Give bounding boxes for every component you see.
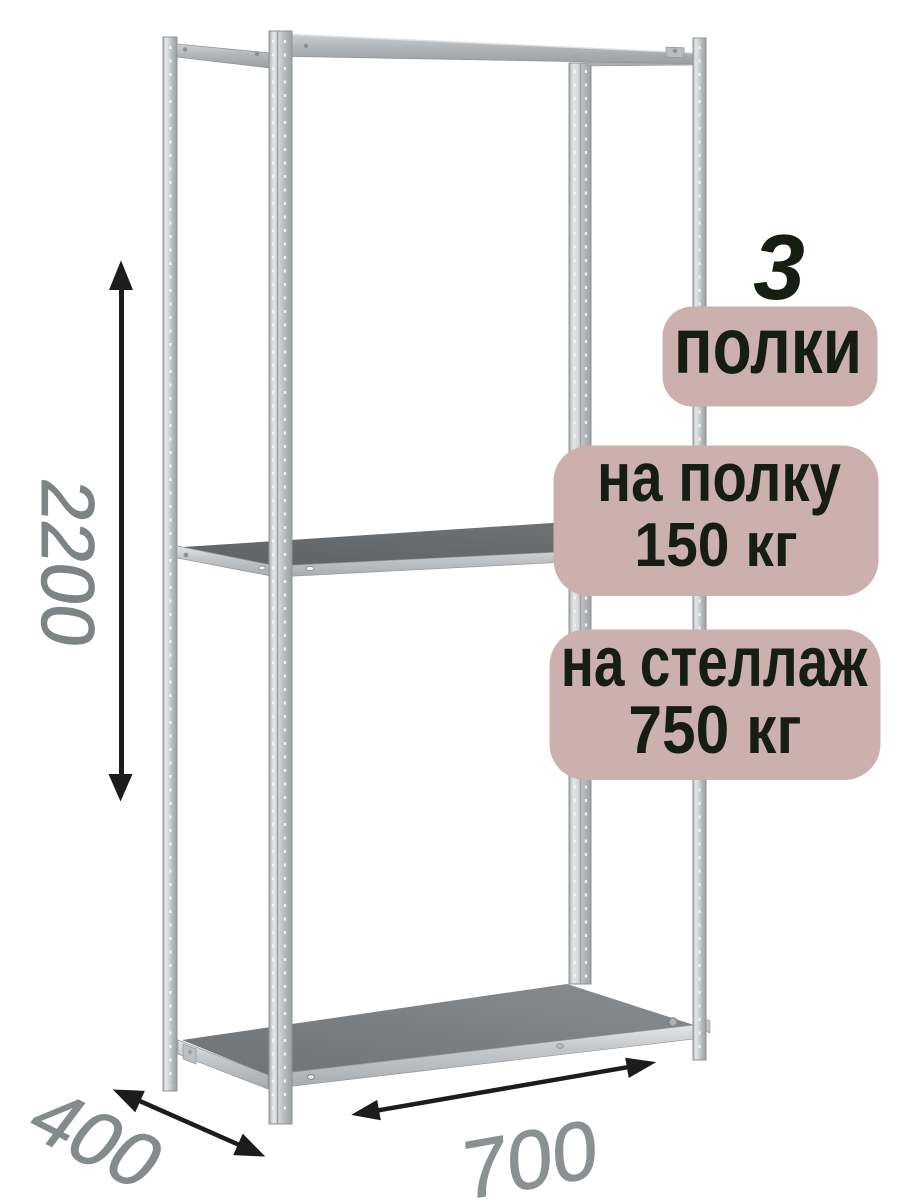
svg-text:на стеллаж: на стеллаж	[561, 624, 869, 702]
svg-text:700: 700	[461, 1102, 599, 1200]
svg-text:750 кг: 750 кг	[628, 692, 801, 768]
svg-text:на полку: на полку	[597, 440, 841, 517]
svg-text:400: 400	[12, 1074, 181, 1200]
svg-text:2200: 2200	[26, 475, 110, 652]
svg-text:полки: полки	[674, 303, 862, 391]
svg-text:150 кг: 150 кг	[634, 510, 797, 580]
